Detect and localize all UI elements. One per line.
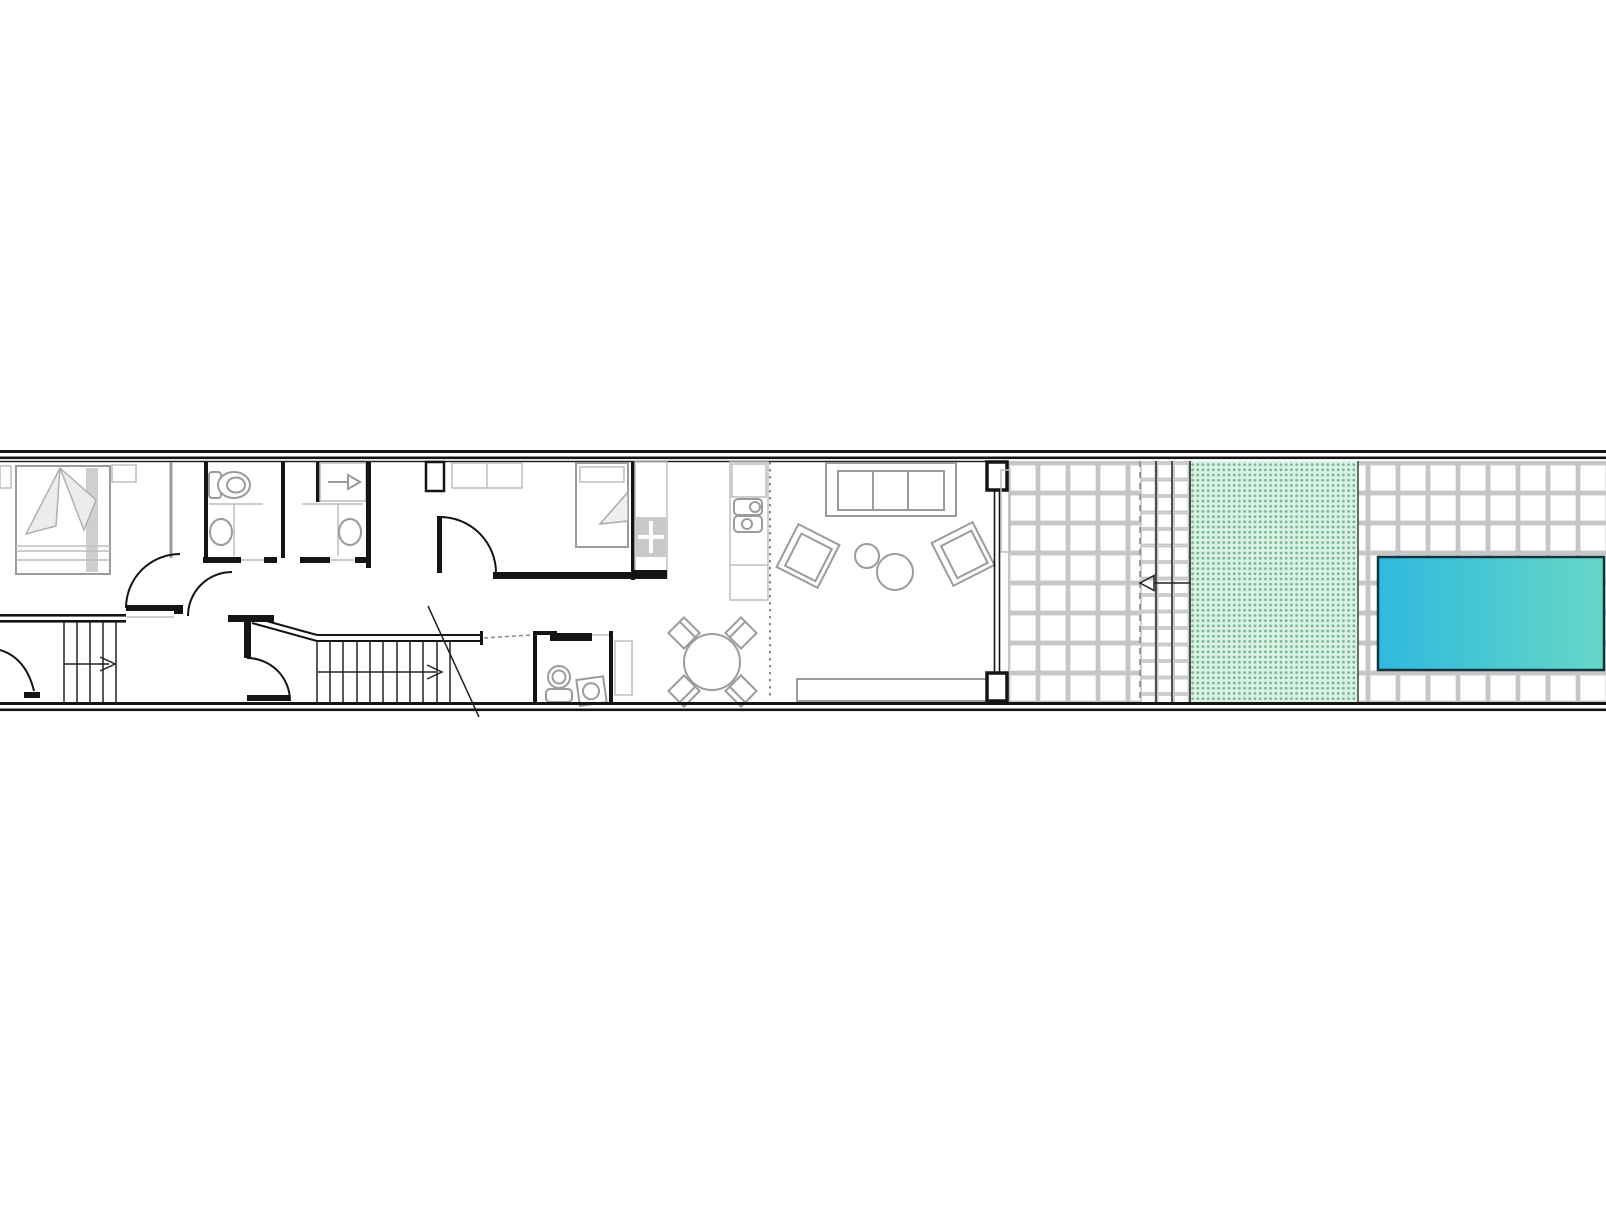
bedroom2-door-leaf <box>437 516 442 573</box>
nightstand-right <box>112 465 136 482</box>
door-frame <box>426 462 444 491</box>
dining-area <box>668 617 756 706</box>
living-room <box>777 462 1010 701</box>
gate-walkway-strip <box>1140 461 1190 703</box>
floor-plan-drawing <box>0 0 1606 1205</box>
kitchen-south-stub <box>631 570 667 579</box>
bedroom1-door-swing <box>126 554 180 608</box>
hall-and-bedroom2-door <box>426 462 496 573</box>
armchair-right <box>932 522 995 586</box>
lower-door-leaf <box>247 695 290 701</box>
wc-west-wall <box>533 631 537 703</box>
nightstand-left <box>0 466 11 488</box>
corridor-north-wall-b <box>0 620 126 623</box>
wc-east-wall <box>609 631 613 703</box>
single-bed <box>576 463 628 547</box>
sofa <box>826 463 956 516</box>
toilet-icon <box>209 472 250 498</box>
bath2-east-wall <box>366 462 371 568</box>
cooktop-icon <box>636 517 666 557</box>
section-break-line <box>428 606 479 717</box>
rail-dashed-link <box>484 635 531 638</box>
bath2-south-wall-a <box>300 557 330 563</box>
patio-tiles-near <box>1008 461 1140 703</box>
hall-wall-stub <box>244 622 251 658</box>
bathroom-2 <box>300 462 371 568</box>
double-sink-icon <box>734 499 762 532</box>
wall-pier-bottom <box>987 673 1007 701</box>
outer-wall-bottom-inner <box>0 702 1606 705</box>
kitchen-cabinet <box>732 464 766 497</box>
corridor-north-wall-a <box>0 614 126 617</box>
entry-door-leaf <box>24 692 40 698</box>
guest-wc <box>533 631 632 706</box>
outer-wall-bottom-outer <box>0 709 1606 712</box>
double-bed <box>16 466 110 574</box>
entry-door-swing <box>0 650 34 691</box>
sink-icon-1 <box>210 519 232 545</box>
bathroom-divider-wall <box>281 462 285 558</box>
bath1-south-wall-a <box>203 557 241 563</box>
outer-wall-top-outer <box>0 450 1606 453</box>
bathroom-1 <box>203 462 285 563</box>
coffee-table-small <box>855 544 879 568</box>
dining-table <box>684 634 740 690</box>
wall-pier-top <box>987 462 1007 490</box>
hall-door-swing <box>188 572 232 616</box>
staircase-2 <box>317 606 479 717</box>
bathroom1-west-wall <box>204 462 208 558</box>
sideboard <box>797 679 987 701</box>
swimming-pool <box>1378 557 1604 670</box>
outdoor-areas <box>1008 461 1606 703</box>
bath1-south-wall-b <box>264 557 277 563</box>
lawn <box>1190 461 1358 702</box>
toilet-icon-2 <box>546 666 572 702</box>
sink-icon-2 <box>339 519 361 545</box>
lower-door-swing <box>247 658 290 701</box>
rail-end-cap <box>480 631 483 645</box>
glass-wall <box>987 462 1010 701</box>
floor-plan-canvas <box>0 0 1606 1205</box>
corner-sink-icon <box>576 676 606 706</box>
wc-side-cabinet <box>615 641 632 695</box>
bedroom2-south-wall <box>493 572 634 579</box>
coffee-table-large <box>877 554 913 590</box>
bedroom-2 <box>452 463 634 579</box>
bedroom1-door-leaf <box>126 605 176 611</box>
corridor <box>0 554 531 717</box>
wc-sliding-door <box>550 633 592 641</box>
outer-wall-top-inner <box>0 457 1606 460</box>
armchair-left <box>777 524 840 588</box>
shower-drain-arrow-icon <box>328 475 360 489</box>
staircase-1 <box>64 622 116 702</box>
bedroom2-door-swing <box>440 517 496 573</box>
